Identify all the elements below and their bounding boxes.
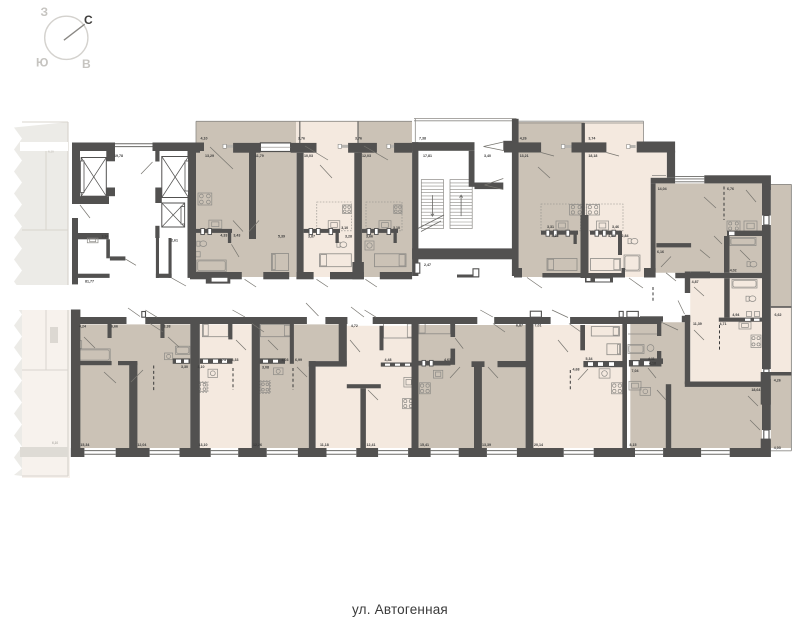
svg-text:4,03: 4,03 bbox=[282, 358, 289, 362]
svg-text:20,14: 20,14 bbox=[534, 443, 543, 447]
svg-text:3,94: 3,94 bbox=[102, 235, 109, 239]
svg-text:4,72: 4,72 bbox=[351, 324, 358, 328]
svg-text:11,18: 11,18 bbox=[320, 443, 329, 447]
svg-text:3,31: 3,31 bbox=[547, 225, 554, 229]
svg-text:13,10: 13,10 bbox=[199, 443, 208, 447]
svg-text:4,30: 4,30 bbox=[608, 234, 615, 238]
svg-text:3,76: 3,76 bbox=[355, 137, 362, 141]
svg-text:15,34: 15,34 bbox=[80, 443, 89, 447]
svg-text:4,48: 4,48 bbox=[385, 358, 392, 362]
svg-text:13,29: 13,29 bbox=[205, 154, 214, 158]
svg-text:Ю: Ю bbox=[36, 56, 48, 70]
svg-text:3,43: 3,43 bbox=[233, 234, 240, 238]
svg-text:ул. Автогенная: ул. Автогенная bbox=[352, 602, 448, 617]
svg-text:6,87: 6,87 bbox=[516, 324, 523, 328]
svg-text:13,21: 13,21 bbox=[520, 154, 529, 158]
svg-text:4,18: 4,18 bbox=[649, 362, 656, 366]
svg-text:12,03: 12,03 bbox=[362, 154, 371, 158]
svg-text:12,26: 12,26 bbox=[253, 443, 262, 447]
svg-text:4,33: 4,33 bbox=[220, 234, 227, 238]
svg-text:2,47: 2,47 bbox=[424, 263, 431, 267]
svg-text:4,94: 4,94 bbox=[732, 313, 739, 317]
svg-text:3,38: 3,38 bbox=[164, 325, 171, 329]
svg-text:3,30: 3,30 bbox=[181, 365, 188, 369]
svg-text:3,10: 3,10 bbox=[341, 226, 348, 230]
svg-text:3,08: 3,08 bbox=[262, 366, 269, 370]
svg-text:11,79: 11,79 bbox=[255, 154, 264, 158]
svg-text:4,35: 4,35 bbox=[552, 234, 559, 238]
svg-text:4,73: 4,73 bbox=[219, 358, 226, 362]
svg-text:4,68: 4,68 bbox=[573, 368, 580, 372]
svg-text:7,01: 7,01 bbox=[535, 324, 542, 328]
svg-text:3,46: 3,46 bbox=[612, 225, 619, 229]
svg-text:6,62: 6,62 bbox=[775, 313, 782, 317]
svg-text:10,03: 10,03 bbox=[304, 154, 313, 158]
svg-text:3,74: 3,74 bbox=[588, 137, 595, 141]
svg-text:2,61: 2,61 bbox=[171, 239, 178, 243]
svg-text:12,41: 12,41 bbox=[367, 443, 376, 447]
svg-text:4,03: 4,03 bbox=[774, 446, 781, 450]
svg-text:17,81: 17,81 bbox=[423, 154, 432, 158]
svg-text:6,10: 6,10 bbox=[52, 441, 58, 445]
svg-text:15,41: 15,41 bbox=[420, 443, 429, 447]
svg-text:4,87: 4,87 bbox=[692, 280, 699, 284]
svg-text:З: З bbox=[41, 5, 49, 19]
svg-text:6,10: 6,10 bbox=[48, 150, 54, 154]
svg-text:3,10: 3,10 bbox=[393, 226, 400, 230]
svg-text:4,10: 4,10 bbox=[201, 137, 208, 141]
svg-text:4,02: 4,02 bbox=[730, 269, 737, 273]
svg-text:81,77: 81,77 bbox=[85, 280, 94, 284]
svg-text:5,39: 5,39 bbox=[278, 235, 285, 239]
svg-text:3,76: 3,76 bbox=[298, 137, 305, 141]
svg-text:19,78: 19,78 bbox=[114, 154, 123, 158]
svg-text:2,84: 2,84 bbox=[622, 234, 629, 238]
svg-text:6,66: 6,66 bbox=[111, 325, 118, 329]
svg-text:18,64: 18,64 bbox=[751, 388, 760, 392]
svg-text:3,10: 3,10 bbox=[198, 365, 205, 369]
svg-text:18,18: 18,18 bbox=[588, 154, 597, 158]
svg-text:7,04: 7,04 bbox=[632, 369, 639, 373]
svg-text:4,26: 4,26 bbox=[520, 137, 527, 141]
svg-text:3,33: 3,33 bbox=[232, 358, 239, 362]
svg-text:4,63: 4,63 bbox=[444, 358, 451, 362]
svg-text:4,71: 4,71 bbox=[720, 322, 727, 326]
svg-text:В: В bbox=[82, 57, 91, 71]
svg-text:14,04: 14,04 bbox=[658, 187, 667, 191]
svg-text:6,76: 6,76 bbox=[727, 187, 734, 191]
svg-text:4,26: 4,26 bbox=[774, 379, 781, 383]
svg-text:5,34: 5,34 bbox=[586, 357, 593, 361]
svg-text:3,66: 3,66 bbox=[366, 235, 373, 239]
svg-text:4,24: 4,24 bbox=[79, 325, 86, 329]
svg-text:6,99: 6,99 bbox=[295, 358, 302, 362]
svg-text:8,15: 8,15 bbox=[630, 443, 637, 447]
svg-text:4,11: 4,11 bbox=[648, 357, 655, 361]
svg-text:С: С bbox=[84, 13, 93, 27]
svg-text:11,39: 11,39 bbox=[693, 322, 702, 326]
svg-text:6,16: 6,16 bbox=[657, 250, 664, 254]
svg-text:3,87: 3,87 bbox=[308, 235, 315, 239]
svg-text:13,39: 13,39 bbox=[482, 443, 491, 447]
svg-text:12,04: 12,04 bbox=[137, 443, 146, 447]
svg-text:3,28: 3,28 bbox=[345, 235, 352, 239]
svg-text:3,40: 3,40 bbox=[484, 154, 491, 158]
svg-text:7,38: 7,38 bbox=[419, 137, 426, 141]
